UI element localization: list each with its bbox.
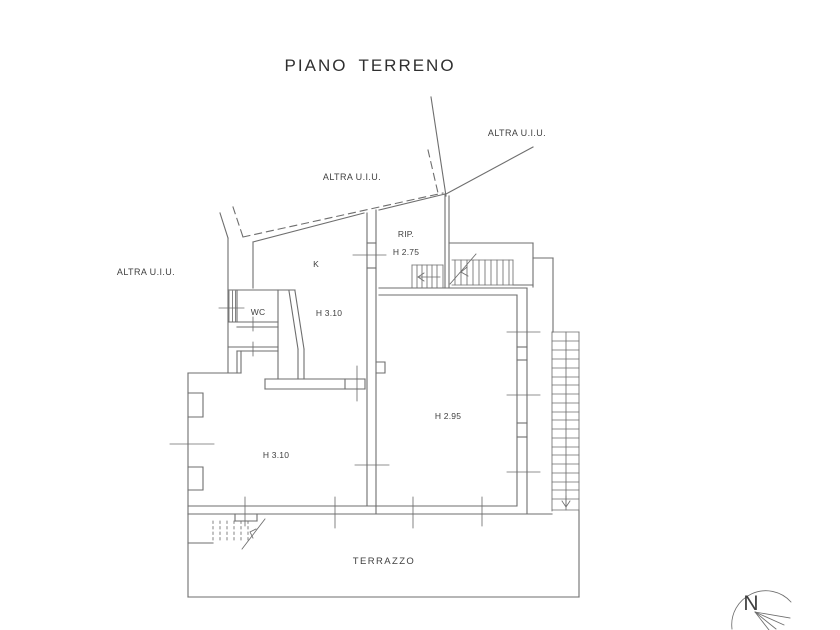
label-wc: WC [251, 307, 266, 317]
living-room-walls [170, 373, 241, 514]
compass-rose [732, 591, 791, 630]
rip-room-walls [379, 194, 449, 288]
kitchen-hall-walls [228, 210, 389, 514]
external-stair [552, 332, 579, 511]
main-room-walls [379, 288, 540, 514]
label-living-height: H 3.10 [263, 450, 289, 460]
main-stair [450, 254, 513, 285]
floor-plan-page: PIANO TERRENO [0, 0, 840, 630]
label-rip: RIP. [398, 229, 414, 239]
label-rip-height: H 2.75 [393, 247, 419, 257]
label-altra-uiu-center: ALTRA U.I.U. [323, 172, 381, 182]
label-terrace: TERRAZZO [353, 556, 415, 567]
rip-stair [412, 265, 443, 288]
south-wall [188, 497, 552, 528]
page-title-word2: TERRENO [358, 56, 455, 75]
compass-north-label: N [743, 592, 758, 615]
label-altra-uiu-top-right: ALTRA U.I.U. [488, 128, 546, 138]
page-title-word1: PIANO [285, 56, 348, 75]
label-altra-uiu-left: ALTRA U.I.U. [117, 267, 175, 277]
label-main-room-height: H 2.95 [435, 411, 461, 421]
terrace-stair-arrow-icon [250, 529, 256, 538]
terrace-stair [213, 519, 265, 549]
label-kitchen: K [313, 259, 319, 269]
label-hall-height: H 3.10 [316, 308, 342, 318]
hall-bottom-wall [265, 366, 365, 401]
terrace-outline [188, 511, 579, 597]
floor-plan-drawing: PIANO TERRENO [0, 0, 840, 630]
